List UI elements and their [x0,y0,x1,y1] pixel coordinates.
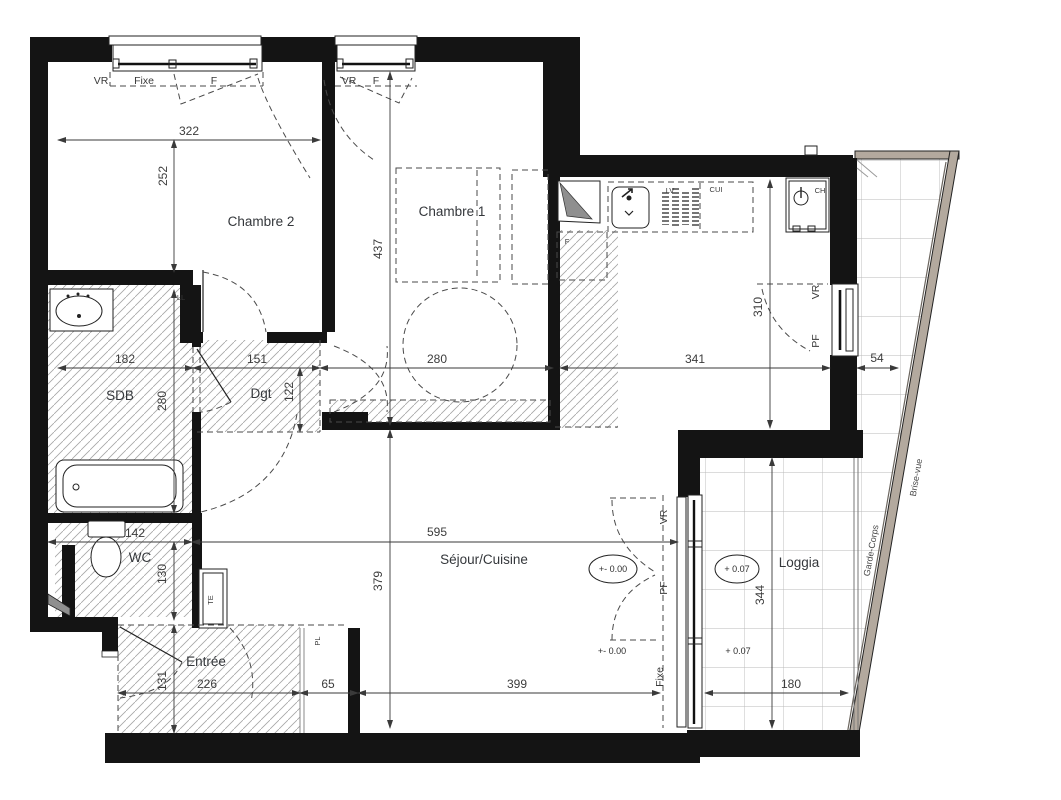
level-plus07-text: + 0.07 [725,646,750,656]
window-loggia-bay [677,495,702,728]
label-pf-bay: PF [658,581,670,594]
room-label-loggia: Loggia [779,555,820,570]
dim-182: 182 [115,352,135,366]
closet-front [300,628,304,733]
label-ch: CH [815,186,826,195]
dim-280-ch1: 280 [427,352,447,366]
room-label-chambre1: Chambre 1 [419,204,486,219]
dim-344: 344 [753,585,767,605]
room-label-chambre2: Chambre 2 [228,214,295,229]
dim-151: 151 [247,352,267,366]
level-zero-text: +- 0.00 [598,646,626,656]
window-chambre2 [109,36,262,71]
level-zero-ellipse: +- 0.00 [599,564,627,574]
label-fixe-bay: Fixe [654,667,666,687]
dim-322: 322 [179,124,199,138]
label-f-window-chambre2: F [211,75,217,87]
dim-252: 252 [156,166,170,186]
dim-54: 54 [870,351,884,365]
label-ll: LL [177,293,185,302]
room-label-dgt: Dgt [250,386,271,401]
label-cui: CUI [710,185,723,194]
dim-130: 130 [155,564,169,584]
bed-outline [396,168,500,282]
label-vr-window-chambre1: VR [342,75,357,87]
dim-310: 310 [751,297,765,317]
dim-226: 226 [197,677,217,691]
label-te: TE [206,595,215,605]
label-pf-window-right: PF [810,334,822,347]
wall-vent [805,146,817,155]
window-right-wall [832,284,858,356]
label-vr-window-right: VR [810,284,822,299]
wardrobe-outline [512,170,548,284]
label-brise-vue: Brise-vue [908,458,924,497]
label-f-window-chambre1: F [373,75,379,87]
label-vr-bay: VR [658,509,670,524]
label-fridge: F [565,237,570,246]
dim-399: 399 [507,677,527,691]
dim-280-sdb: 280 [155,391,169,411]
label-pl: PL [313,636,322,645]
label-fixe-window-chambre2: Fixe [134,75,154,87]
kitchen-sink [612,187,649,228]
dim-142: 142 [125,526,145,540]
label-lv: LV [666,186,675,195]
level-plus07-ellipse: + 0.07 [724,564,749,574]
dim-131: 131 [155,671,169,691]
room-label-wc: WC [129,550,152,565]
bathroom-sink [50,289,113,331]
room-label-sejour: Séjour/Cuisine [440,552,528,567]
label-vr-window-chambre2: VR [94,75,109,87]
bathtub [56,460,183,512]
clearance-circle [403,288,517,402]
dim-65: 65 [321,677,335,691]
dim-122: 122 [282,382,296,402]
dim-437: 437 [371,239,385,259]
floor-plan-page: Chambre 2 Chambre 1 SDB Dgt WC Entrée Sé… [0,0,1061,800]
dim-180: 180 [781,677,801,691]
dim-341: 341 [685,352,705,366]
dim-379: 379 [371,571,385,591]
room-label-entree: Entrée [186,654,226,669]
duct-shaft [558,181,600,223]
door-arc-chambre2 [203,272,266,332]
room-label-sdb: SDB [106,388,134,403]
dim-595: 595 [427,525,447,539]
window-chambre1 [335,36,417,71]
floor-plan-drawing: Chambre 2 Chambre 1 SDB Dgt WC Entrée Sé… [0,0,1061,800]
